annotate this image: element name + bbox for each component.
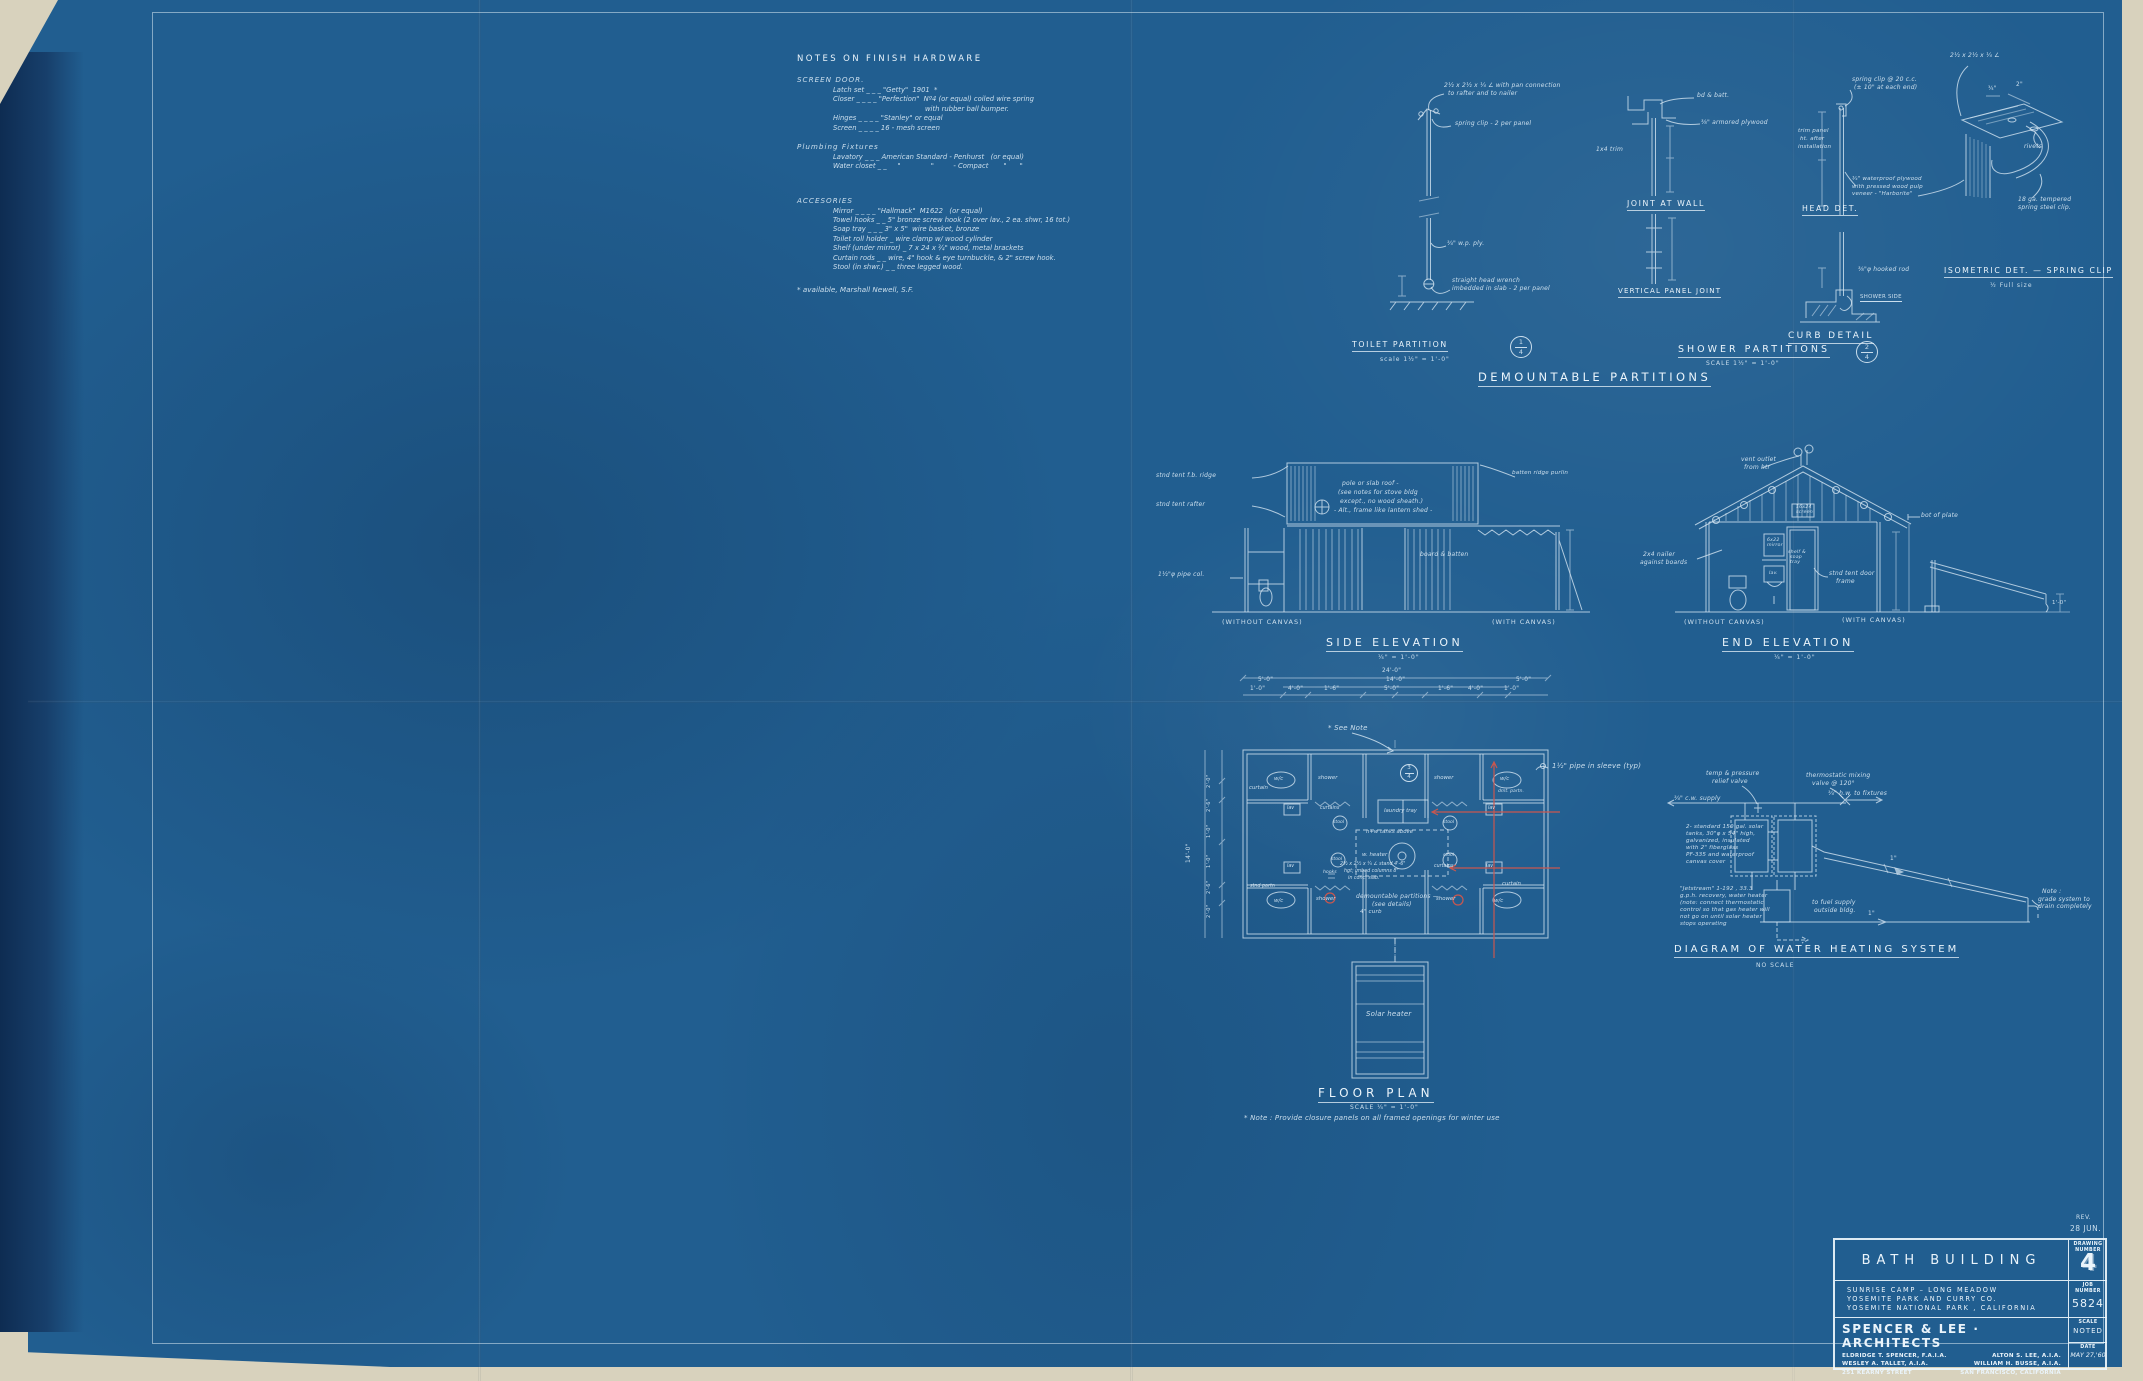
firm-address: SAN FRANCISCO, CALIFORNIA xyxy=(1960,1370,2061,1376)
annotation: lav. xyxy=(1769,571,1778,577)
note-line: Screen _ _ _ _ 16 - mesh screen xyxy=(797,124,1147,133)
plumbing-heading: Plumbing Fixtures xyxy=(797,142,1147,151)
annotation: straight head wrench xyxy=(1452,277,1520,285)
drawing-number-label: DRAWING xyxy=(2074,1242,2103,1247)
annotation: 2½ x 2½ x ¼ ∠ with pan connection xyxy=(1444,82,1561,90)
dimension: 1'-0" xyxy=(1206,855,1212,868)
detail-title: ISOMETRIC DET. — SPRING CLIP xyxy=(1944,266,2113,278)
annotation: thermostatic mixing xyxy=(1806,772,1870,780)
room-label-wc: w/c xyxy=(1494,898,1503,904)
annotation: ht. after xyxy=(1800,136,1824,144)
view-scale: ¼" = 1'-0" xyxy=(1774,654,1816,661)
dimension: 1'-6" xyxy=(1324,686,1339,692)
dimension: 1'-6" xyxy=(1438,686,1453,692)
note-line: Water closet _ _ " " - Compact " " xyxy=(797,162,1147,171)
annotation: bd & batt. xyxy=(1697,92,1729,100)
annotation: valve @ 120° xyxy=(1812,780,1855,788)
dimension: 1'-0" xyxy=(2052,600,2066,606)
dimension: 14'-0" xyxy=(1185,843,1192,863)
annotation: 1x4 trim xyxy=(1596,146,1623,154)
detail-marker: 3 4 xyxy=(1400,764,1418,782)
scale-value: NOTED xyxy=(2069,1327,2107,1335)
sheet-number: 4 xyxy=(1519,349,1523,356)
job-number-label: NUMBER xyxy=(2075,1289,2101,1294)
annotation: 2x4 nailer xyxy=(1643,551,1675,559)
drawing-title: BATH BUILDING xyxy=(1835,1240,2068,1281)
annotation: stops operating xyxy=(1680,921,1727,929)
caption: (WITH CANVAS) xyxy=(1842,616,1906,625)
room-label-wc: w/c xyxy=(1500,776,1509,782)
caption: (WITHOUT CANVAS) xyxy=(1684,618,1765,627)
room-label-shower: shower xyxy=(1316,896,1335,902)
annotation: 2½ x 2½ x ¼ ∠ xyxy=(1950,52,2000,60)
sheet-number: 4 xyxy=(1407,775,1411,781)
annotation: tray xyxy=(1790,560,1800,566)
annotation: (see details) xyxy=(1372,901,1412,909)
dimension: 24'-0" xyxy=(1382,668,1401,674)
partner-name: WILLIAM H. BUSSE, A.I.A. xyxy=(1974,1361,2061,1367)
drawing-number-cell: DRAWING NUMBER 4 xyxy=(2069,1240,2107,1281)
annotation: 1½"φ pipe col. xyxy=(1158,571,1205,579)
view-title: END ELEVATION xyxy=(1722,636,1854,652)
annotation: rivets xyxy=(2024,143,2042,151)
annotation: * See Note xyxy=(1328,724,1368,733)
note-line: Curtain rods _ _ wire, 4" hook & eye tur… xyxy=(797,254,1147,263)
room-label-stool: stool xyxy=(1443,820,1454,825)
annotation: 4" curb xyxy=(1360,909,1382,917)
annotation: (± 10" at each end) xyxy=(1854,84,1917,92)
annotation: canvas cover xyxy=(1686,859,1725,867)
annotation: Note : xyxy=(2042,888,2061,896)
blueprint-scan: NOTES ON FINISH HARDWARE SCREEN DOOR. La… xyxy=(0,0,2143,1381)
room-label-tanks: h+w tanks above xyxy=(1366,829,1413,835)
caption: (WITHOUT CANVAS) xyxy=(1222,618,1303,627)
annotation: ⅜" armored plywood xyxy=(1701,119,1768,127)
room-label-heater: w. heater xyxy=(1362,852,1387,858)
detail-title: HEAD DET. xyxy=(1802,204,1858,216)
dimension: 1'-0" xyxy=(1504,686,1519,692)
finish-hardware-notes: NOTES ON FINISH HARDWARE SCREEN DOOR. La… xyxy=(797,54,1147,294)
title-block: BATH BUILDING SUNRISE CAMP – LONG MEADOW… xyxy=(1833,1238,2107,1370)
annotation: - Alt., frame like lantern shed - xyxy=(1334,507,1433,515)
project-info: SUNRISE CAMP – LONG MEADOW YOSEMITE PARK… xyxy=(1835,1281,2068,1318)
room-label-hooks: hooks xyxy=(1323,870,1337,875)
partner-name: ALTON S. LEE, A.I.A. xyxy=(1992,1353,2061,1359)
annotation: spring steel clip. xyxy=(2018,204,2071,212)
annotation: screen xyxy=(1796,510,1813,516)
dimension: 4'-0" xyxy=(1468,686,1483,692)
job-number-label: JOB xyxy=(2083,1283,2094,1288)
revision-date: 28 JUN. xyxy=(2070,1224,2101,1233)
room-label-stnd-partn: stnd partn xyxy=(1250,884,1275,889)
annotation: outside bldg. xyxy=(1814,907,1856,915)
dimension: 2'-6" xyxy=(1206,881,1212,894)
section-title: DEMOUNTABLE PARTITIONS xyxy=(1478,370,1711,387)
dimension: 2'-6" xyxy=(1206,799,1212,812)
date-cell: DATE MAY 27,'60 xyxy=(2069,1343,2107,1368)
note-line: Closer _ _ _ _ "Perfection" Nº4 (or equa… xyxy=(797,95,1147,104)
firm-name: SPENCER & LEE · ARCHITECTS xyxy=(1842,1322,2061,1350)
project-line: YOSEMITE NATIONAL PARK , CALIFORNIA xyxy=(1847,1304,2068,1312)
dimension: 2'-0" xyxy=(1206,775,1212,788)
room-label-wc: w/c xyxy=(1274,776,1283,782)
annotation: stnd tent rafter xyxy=(1156,501,1205,509)
room-label-curtains: curtains xyxy=(1320,806,1339,811)
annotation: hgt; imbed columns 8" xyxy=(1344,869,1399,874)
annotation: from htr xyxy=(1744,464,1770,472)
note-line: Toilet roll holder _ wire clamp w/ wood … xyxy=(797,235,1147,244)
note-line: Mirror _ _ _ _ "Hallmack" M1622 (or equa… xyxy=(797,207,1147,216)
annotation: 18 ga. tempered xyxy=(2018,196,2071,204)
annotation: ¾" h.w. to fixtures xyxy=(1828,790,1887,798)
detail-number: 2 xyxy=(1865,344,1869,351)
detail-scale: SCALE 1½" = 1'-0" xyxy=(1706,360,1780,367)
dimension: 5'-0" xyxy=(1384,686,1399,692)
note-line: Soap tray _ _ _ 3" x 5" wire basket, bro… xyxy=(797,225,1147,234)
note-line: with rubber ball bumper. xyxy=(797,105,1147,114)
note-line: Latch set _ _ _ "Getty" 1901 * xyxy=(797,86,1147,95)
annotation: spring clip - 2 per panel xyxy=(1455,120,1531,128)
annotation: to rafter and to nailer xyxy=(1448,90,1517,98)
firm-info: SPENCER & LEE · ARCHITECTS ELDRIDGE T. S… xyxy=(1835,1318,2068,1376)
annotation: imbedded in slab - 2 per panel xyxy=(1452,285,1550,293)
section-title: SHOWER PARTITIONS xyxy=(1678,344,1830,358)
detail-number: 1 xyxy=(1519,339,1523,346)
annotation: temp & pressure xyxy=(1706,770,1759,778)
note-line: Towel hooks _ _ 5" bronze screw hook (2 … xyxy=(797,216,1147,225)
annotation: in conc. slab. xyxy=(1348,876,1380,881)
annotation: ¾" w.p. ply. xyxy=(1447,240,1484,248)
caption: (WITH CANVAS) xyxy=(1492,618,1556,627)
note-line: Hinges _ _ _ _ "Stanley" or equal xyxy=(797,114,1147,123)
annotation: ⅜"φ hooked rod xyxy=(1858,266,1909,274)
project-line: SUNRISE CAMP – LONG MEADOW xyxy=(1847,1286,2068,1294)
sheet-number: 4 xyxy=(1865,354,1869,361)
view-scale: NO SCALE xyxy=(1756,962,1794,969)
detail-marker: 2 4 xyxy=(1856,341,1878,363)
notes-footnote: * available, Marshall Newell, S.F. xyxy=(797,285,1147,294)
annotation: frame xyxy=(1836,578,1855,586)
dimension: ¾" xyxy=(1988,86,1997,92)
date-value: MAY 27,'60 xyxy=(2069,1352,2107,1359)
dimension: 1" xyxy=(1868,911,1875,917)
annotation: vent outlet xyxy=(1741,456,1776,464)
view-scale: ¼" = 1'-0" xyxy=(1378,654,1420,661)
room-label-lav: lav xyxy=(1486,864,1493,869)
annotation: trim panel xyxy=(1798,128,1829,136)
annotation: drain completely xyxy=(2038,903,2092,911)
annotation: demountable partitions — xyxy=(1356,893,1439,901)
room-label-solar-heater: Solar heater xyxy=(1366,1010,1411,1019)
view-scale: SCALE ¼" = 1'-0" xyxy=(1350,1104,1419,1111)
dimension: 1'-0" xyxy=(1250,686,1265,692)
annotation: 2½ x 2½ x ¼ ∠ stand 4'-6" xyxy=(1340,862,1405,867)
notes-title: NOTES ON FINISH HARDWARE xyxy=(797,54,1147,64)
scale-cell: SCALE NOTED xyxy=(2069,1318,2107,1343)
annotation: to fuel supply xyxy=(1812,899,1856,907)
room-label-shower: shower xyxy=(1318,775,1337,781)
annotation: ¾" waterproof plywood with pressed wood … xyxy=(1852,176,1924,199)
partner-name: ELDRIDGE T. SPENCER, F.A.I.A. xyxy=(1842,1353,1947,1359)
dimension: 2'-0" xyxy=(1206,905,1212,918)
date-label: DATE xyxy=(2069,1343,2107,1351)
detail-title: VERTICAL PANEL JOINT xyxy=(1618,287,1721,298)
room-label-dmt-partn: dmt. partn. xyxy=(1498,789,1524,794)
annotation: bot of plate xyxy=(1921,512,1958,520)
room-label-stool: stool xyxy=(1443,853,1454,858)
room-label-stool: stool xyxy=(1333,820,1344,825)
annotation: board & batten xyxy=(1420,551,1468,559)
title-block-main: BATH BUILDING SUNRISE CAMP – LONG MEADOW… xyxy=(1835,1240,2069,1368)
job-number: 5824 xyxy=(2069,1297,2107,1310)
dimension: 5'-0" xyxy=(1258,677,1273,683)
annotation: except., no wood sheath.) xyxy=(1340,498,1423,506)
plan-note: * Note : Provide closure panels on all f… xyxy=(1244,1114,1500,1123)
view-title: FLOOR PLAN xyxy=(1318,1086,1434,1103)
screen-door-heading: SCREEN DOOR. xyxy=(797,75,1147,84)
detail-title: JOINT AT WALL xyxy=(1627,199,1705,211)
detail-number: 3 xyxy=(1407,766,1411,772)
annotation: installation xyxy=(1798,144,1831,152)
accessories-heading: ACCESORIES xyxy=(797,196,1147,205)
annotation: ¾" c.w. supply xyxy=(1674,795,1721,803)
note-line: Stool (in shwr.) _ _ three legged wood. xyxy=(797,263,1147,272)
room-label-curtain: curtain xyxy=(1502,881,1521,887)
job-number-cell: JOB NUMBER 5824 xyxy=(2069,1281,2107,1318)
view-title: SIDE ELEVATION xyxy=(1326,636,1463,652)
room-label-lav: lav xyxy=(1287,864,1294,869)
room-label-laundry: laundry tray xyxy=(1384,808,1417,814)
partner-name: WESLEY A. TALLET, A.I.A. xyxy=(1842,1361,1928,1367)
detail-marker: 1 4 xyxy=(1510,336,1532,358)
dimension: 5'-0" xyxy=(1516,677,1531,683)
room-label-wc: w/c xyxy=(1274,898,1283,904)
dimension: 2" xyxy=(2016,82,2023,88)
dimension: 4'-0" xyxy=(1288,686,1303,692)
annotation: mirror xyxy=(1767,543,1783,549)
room-label-curtains: curtains xyxy=(1434,864,1453,869)
room-label-lav: lav xyxy=(1488,806,1495,811)
detail-scale: ½ Full size xyxy=(1990,282,2033,289)
annotation: pole or slab roof - xyxy=(1342,480,1399,488)
annotation: stnd tent door xyxy=(1829,570,1875,578)
scale-label: SCALE xyxy=(2069,1318,2107,1326)
annotation: against boards xyxy=(1640,559,1687,567)
detail-title: TOILET PARTITION xyxy=(1352,340,1448,352)
annotation: relief valve xyxy=(1712,778,1748,786)
annotation: 1½" pipe in sleeve (typ) xyxy=(1552,762,1641,771)
annotation: spring clip @ 20 c.c. xyxy=(1852,76,1917,84)
room-label-lav: lav xyxy=(1287,806,1294,811)
sheet-content: NOTES ON FINISH HARDWARE SCREEN DOOR. La… xyxy=(0,0,2143,1381)
annotation: stnd tent f.b. ridge xyxy=(1156,472,1216,480)
note-line: Lavatory _ _ _ American Standard - Penhu… xyxy=(797,153,1147,162)
annotation: SHOWER SIDE xyxy=(1860,294,1902,302)
firm-address: 251 KEARNY STREET xyxy=(1842,1370,1912,1376)
room-label-shower: shower xyxy=(1434,775,1453,781)
dimension: 1" xyxy=(1890,856,1897,862)
revision-label: REV. xyxy=(2076,1214,2091,1221)
project-line: YOSEMITE PARK AND CURRY CO. xyxy=(1847,1295,2068,1303)
view-title: DIAGRAM OF WATER HEATING SYSTEM xyxy=(1674,944,1959,958)
drawing-number: 4 xyxy=(2069,1254,2107,1274)
dimension: 1'-0" xyxy=(1206,825,1212,838)
room-label-curtain: curtain xyxy=(1249,785,1268,791)
annotation: batten ridge purlin xyxy=(1512,470,1568,478)
note-line: Shelf (under mirror) _ 7 x 24 x ¾" wood,… xyxy=(797,244,1147,253)
detail-scale: scale 1½" = 1'-0" xyxy=(1380,356,1450,363)
dimension: 14'-0" xyxy=(1386,677,1405,683)
annotation: (see notes for stove bldg xyxy=(1338,489,1418,497)
